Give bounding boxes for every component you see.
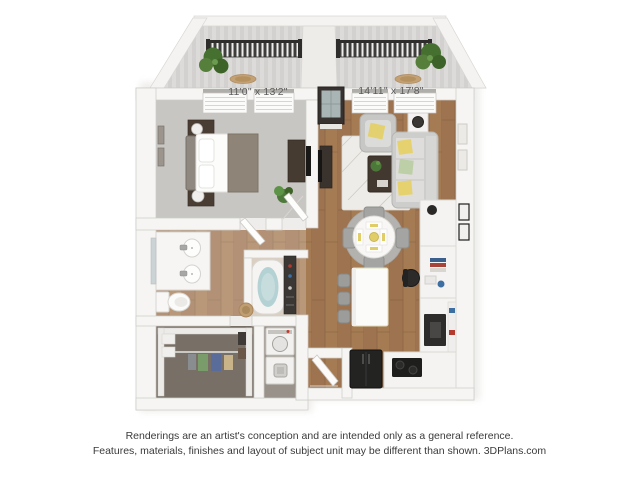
bedroom-art-frame-2 bbox=[158, 148, 164, 166]
wire-shelf-right bbox=[246, 328, 252, 396]
pillow-yellow bbox=[397, 139, 413, 155]
refrigerator bbox=[350, 350, 382, 388]
wall-frame-1 bbox=[458, 124, 467, 144]
floor-plan-canvas: 11'0" x 13'2" 14'11" x 17'8" Renderings … bbox=[0, 0, 639, 479]
floor-lamp bbox=[413, 117, 424, 128]
bar-stool-1 bbox=[338, 274, 350, 287]
console-table bbox=[420, 200, 456, 246]
bedroom-tv bbox=[306, 146, 311, 176]
dryer bbox=[266, 357, 294, 384]
duvet-throw bbox=[228, 134, 258, 192]
faucet-1 bbox=[180, 245, 187, 250]
disclaimer-line-1: Renderings are an artist's conception an… bbox=[0, 429, 639, 444]
living-room-dimensions-label: 14'11" x 17'8" bbox=[358, 85, 424, 97]
lamp-side-table bbox=[408, 112, 428, 132]
storage-basket-1 bbox=[162, 334, 175, 344]
wall-tub-niche-top bbox=[244, 250, 308, 258]
black-frame-2 bbox=[459, 224, 469, 240]
wall-frame-2 bbox=[458, 150, 467, 170]
balcony-mat-left bbox=[230, 75, 256, 84]
pillow-yellow bbox=[397, 180, 412, 195]
bathtub bbox=[252, 260, 284, 314]
balcony-divider-wall bbox=[301, 26, 337, 88]
disclaimer-line-2: Features, materials, finishes and layout… bbox=[0, 444, 639, 459]
washer bbox=[266, 328, 294, 355]
wall-bottom-right bbox=[296, 388, 474, 400]
faucet-2 bbox=[180, 271, 187, 276]
wall-entry-top bbox=[308, 348, 342, 358]
wall-bedroom-bath-2 bbox=[266, 218, 282, 230]
dining-chair-e bbox=[396, 228, 409, 248]
balcony-railing-right bbox=[336, 39, 432, 58]
wall-bottom-left bbox=[136, 398, 308, 410]
bar-stool-3 bbox=[338, 310, 350, 323]
balcony-section bbox=[150, 16, 486, 88]
black-frame-1 bbox=[459, 204, 469, 220]
wall-hall-left bbox=[296, 315, 308, 400]
bed bbox=[186, 134, 258, 192]
cooktop bbox=[392, 358, 422, 377]
coffee-table bbox=[368, 156, 394, 192]
sofa bbox=[392, 132, 438, 208]
bath-shelf bbox=[284, 256, 296, 314]
blue-mug bbox=[438, 281, 445, 288]
book-blue bbox=[430, 258, 446, 262]
disclaimer: Renderings are an artist's conception an… bbox=[0, 429, 639, 459]
wall-bedroom-bath-1 bbox=[136, 218, 240, 230]
black-lamp bbox=[427, 205, 437, 215]
centerpiece-bowl bbox=[370, 233, 379, 242]
wire-shelf-top bbox=[158, 328, 252, 334]
pillow-2 bbox=[199, 165, 214, 188]
floor-plan-rendering: 11'0" x 13'2" 14'11" x 17'8" bbox=[0, 0, 639, 479]
pillow-green bbox=[398, 159, 413, 174]
woven-basket bbox=[239, 303, 253, 317]
vanity-mirror bbox=[151, 238, 156, 284]
book-red bbox=[430, 263, 446, 267]
bar-stool-2 bbox=[338, 292, 350, 305]
book-white bbox=[430, 268, 446, 272]
wall-bath-closet-1 bbox=[136, 316, 230, 326]
bedroom-dresser bbox=[288, 140, 305, 182]
balcony-mat-right bbox=[395, 75, 421, 84]
wall-closet-laundry bbox=[254, 326, 264, 398]
kitchen-island bbox=[352, 268, 388, 326]
toilet bbox=[156, 292, 190, 312]
table-lamp-top bbox=[192, 124, 203, 135]
storage-basket-2 bbox=[162, 347, 175, 357]
armchair bbox=[360, 114, 396, 152]
living-tv bbox=[318, 150, 322, 182]
vanity bbox=[156, 232, 210, 290]
balcony-back-wall bbox=[194, 16, 446, 26]
balcony-door bbox=[318, 87, 344, 129]
bedroom-art-frame-1 bbox=[158, 126, 164, 144]
pillow-1 bbox=[199, 139, 214, 162]
bedroom-dimensions-label: 11'0" x 13'2" bbox=[228, 86, 287, 98]
